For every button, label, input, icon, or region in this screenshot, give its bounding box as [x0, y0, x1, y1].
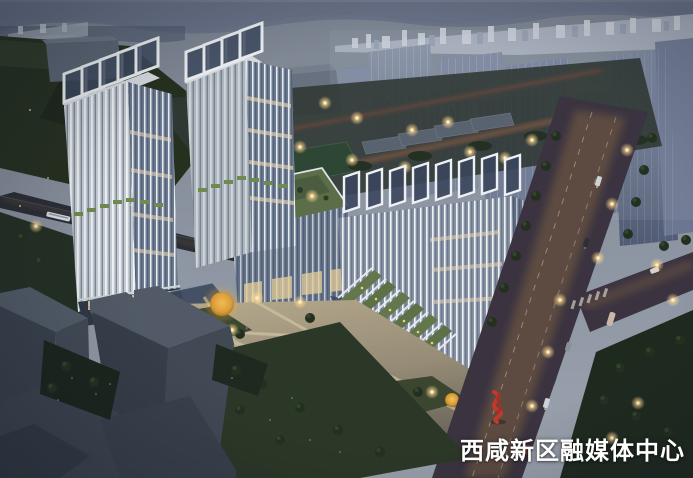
vignette-overlay	[0, 0, 693, 478]
watermark-title: 西咸新区融媒体中心	[460, 431, 685, 466]
rendered-scene	[0, 0, 693, 478]
architectural-rendering-media-center: 西咸新区融媒体中心	[0, 0, 693, 478]
